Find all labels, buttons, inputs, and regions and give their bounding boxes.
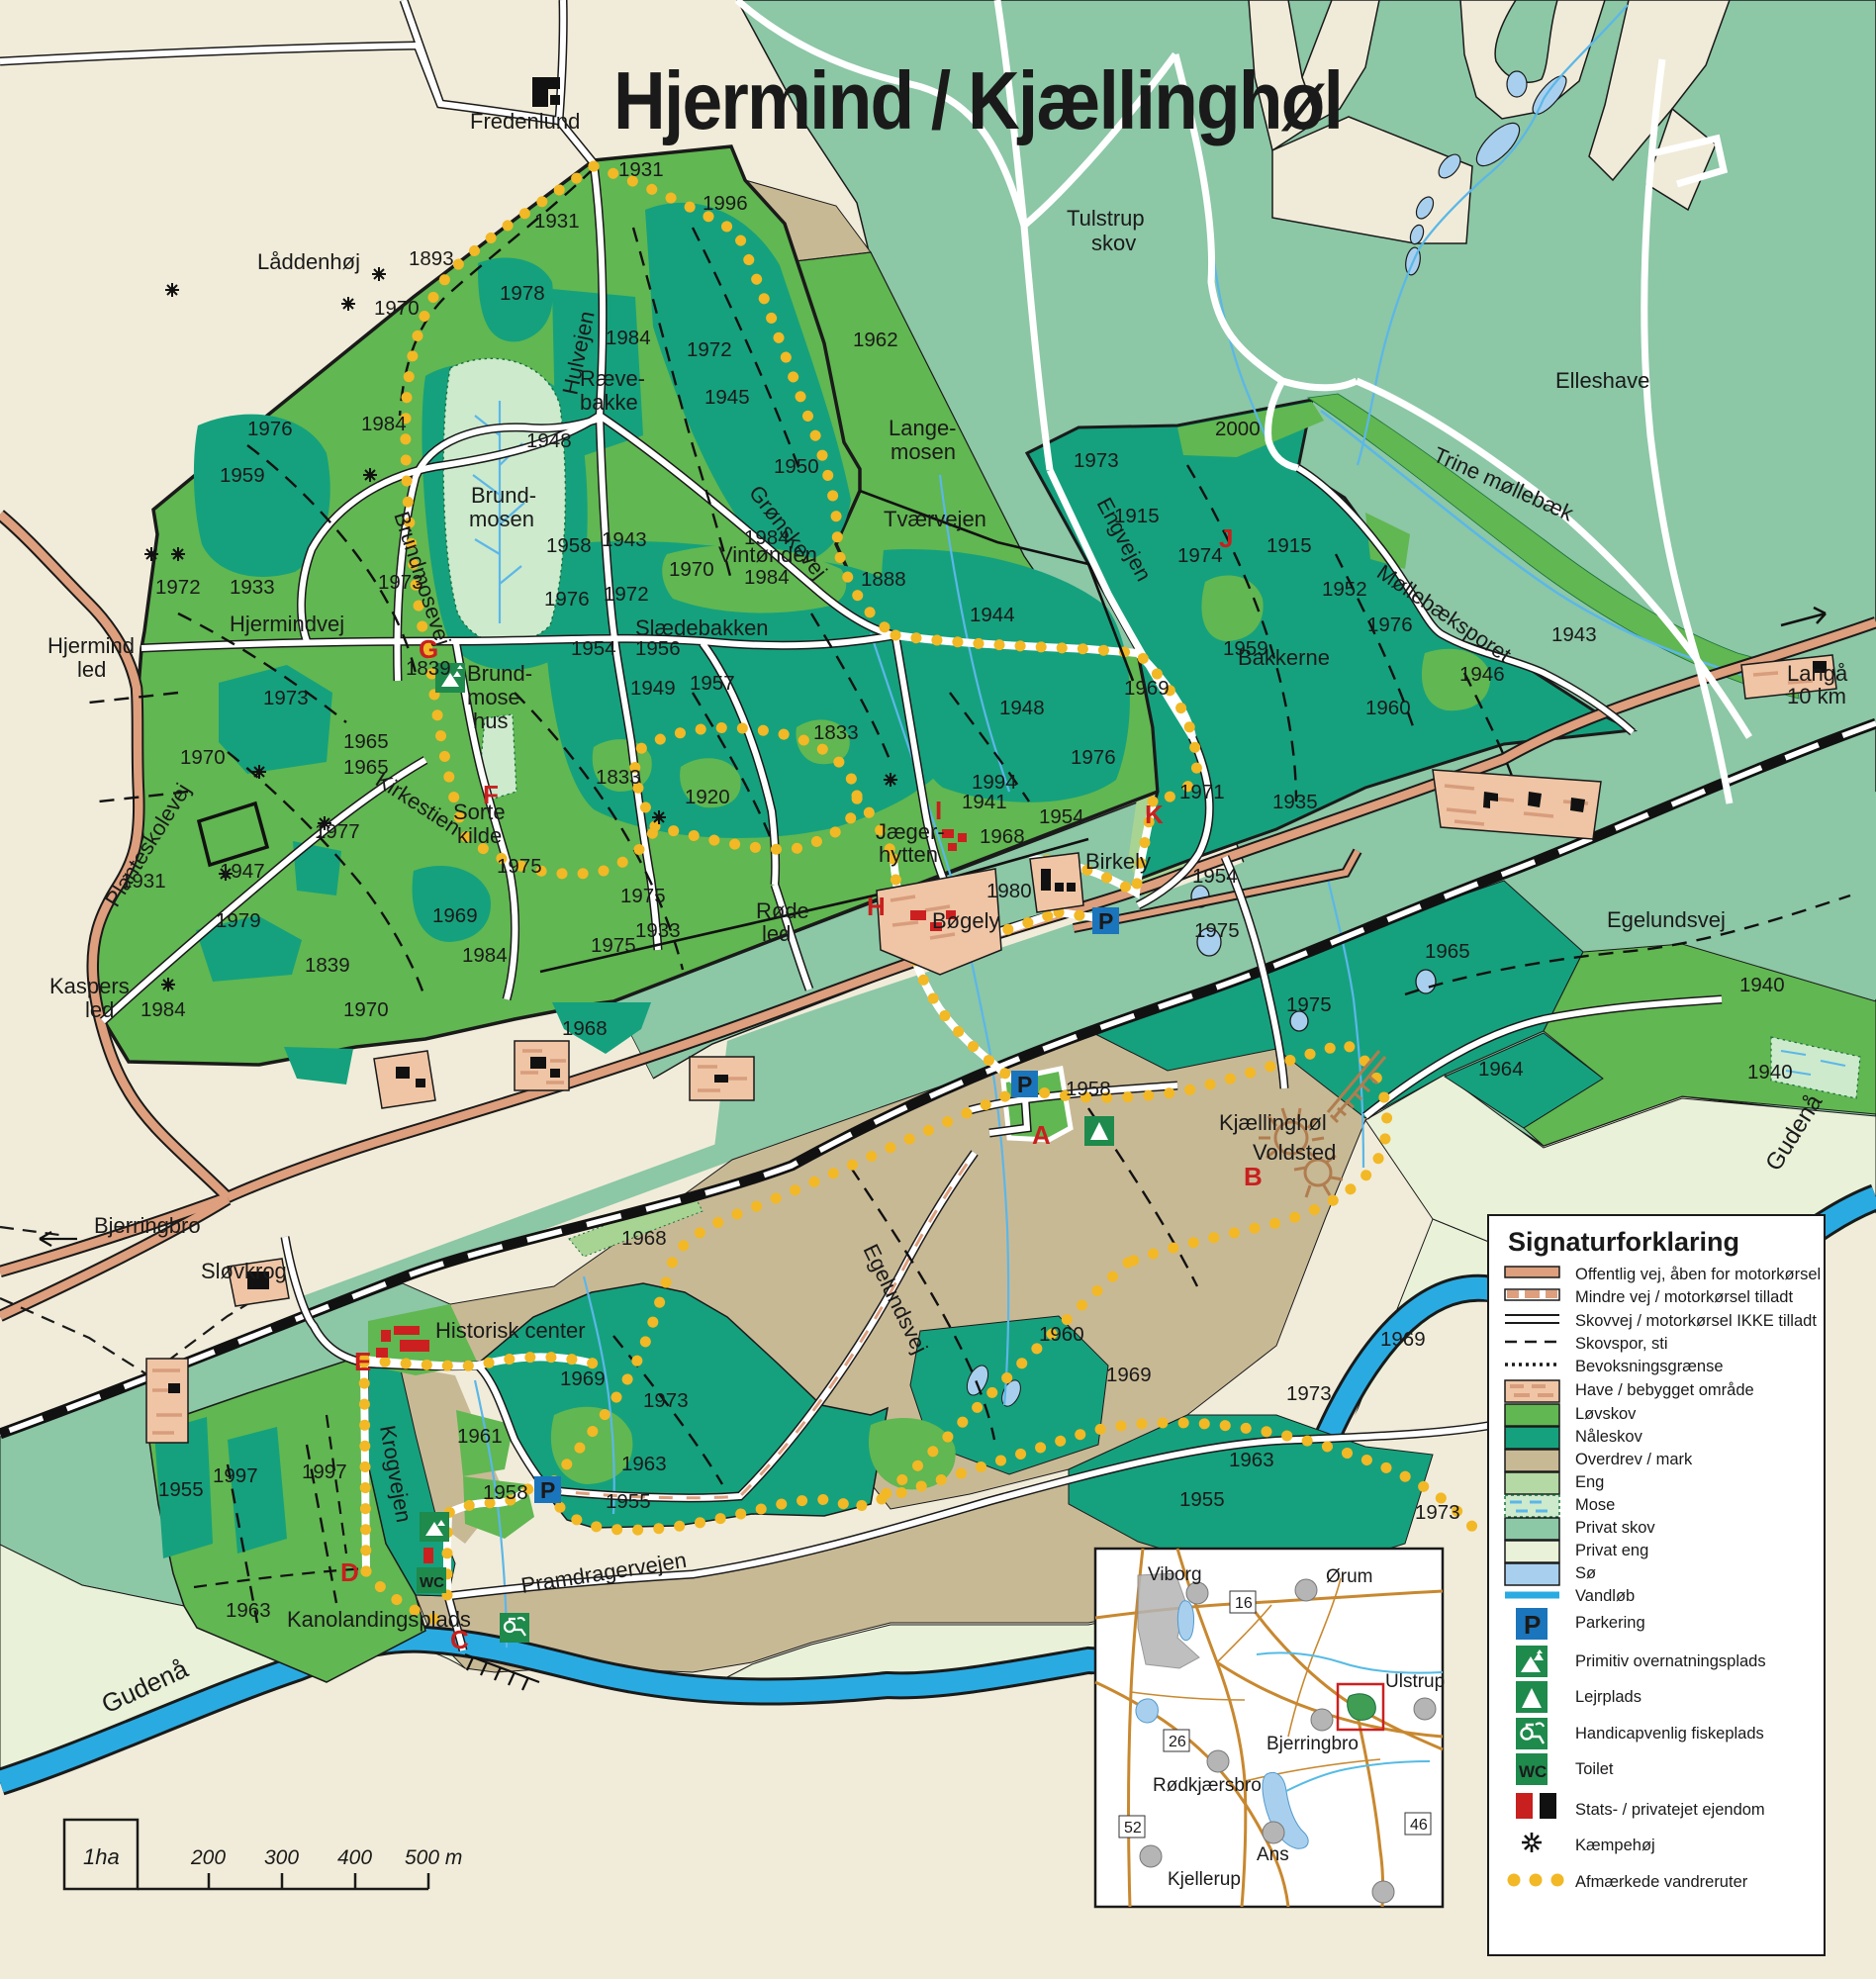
svg-text:Mose: Mose [1575,1496,1615,1514]
svg-text:1975: 1975 [1194,919,1240,942]
svg-text:Rødkjærsbro: Rødkjærsbro [1153,1775,1262,1796]
svg-text:1969: 1969 [432,904,478,927]
svg-text:B: B [1244,1162,1263,1191]
svg-text:1984: 1984 [606,327,651,349]
svg-text:1963: 1963 [1229,1449,1274,1471]
svg-text:Afmærkede vandreruter: Afmærkede vandreruter [1575,1873,1748,1891]
svg-text:Bjerringbro: Bjerringbro [1266,1734,1359,1754]
svg-text:1975: 1975 [591,934,636,957]
svg-text:1948: 1948 [526,429,572,452]
svg-text:1833: 1833 [813,721,859,744]
svg-text:Lejrplads: Lejrplads [1575,1688,1641,1706]
svg-text:Ørum: Ørum [1326,1566,1373,1587]
svg-text:1970: 1970 [669,558,714,581]
svg-text:1997: 1997 [213,1464,258,1487]
svg-text:1994: 1994 [972,771,1017,794]
svg-text:1935: 1935 [1272,791,1318,813]
svg-text:H: H [867,892,886,921]
svg-text:1920: 1920 [685,786,730,808]
svg-text:1969: 1969 [560,1367,606,1390]
svg-text:Offentlig vej, åben for motork: Offentlig vej, åben for motorkørsel [1575,1266,1821,1283]
svg-text:Voldsted: Voldsted [1253,1140,1336,1165]
svg-text:1931: 1931 [534,210,580,233]
svg-text:Brund-: Brund- [467,661,532,686]
svg-text:Skovvej / motorkørsel IKKE til: Skovvej / motorkørsel IKKE tilladt [1575,1312,1817,1330]
svg-text:Tulstrup: Tulstrup [1067,206,1145,231]
svg-text:1954: 1954 [571,637,616,660]
svg-text:Viborg: Viborg [1148,1564,1202,1585]
svg-text:Lange-: Lange- [889,416,957,440]
svg-text:1888: 1888 [861,568,906,591]
svg-text:Bevoksningsgrænse: Bevoksningsgrænse [1575,1358,1724,1375]
svg-text:1976: 1976 [1071,746,1116,769]
svg-text:Vandløb: Vandløb [1575,1587,1635,1605]
svg-text:1940: 1940 [1739,974,1785,996]
svg-text:Brund-: Brund- [471,483,536,508]
svg-text:46: 46 [1410,1817,1428,1834]
svg-text:led: led [85,997,114,1022]
svg-text:1931: 1931 [618,158,664,181]
svg-text:26: 26 [1169,1734,1186,1750]
svg-text:1978: 1978 [500,282,545,305]
svg-text:Elleshave: Elleshave [1555,368,1649,393]
svg-text:1973: 1973 [1074,449,1119,472]
svg-text:1833: 1833 [596,766,641,789]
svg-text:2000: 2000 [1215,418,1261,440]
svg-text:52: 52 [1124,1820,1142,1837]
svg-text:E: E [354,1347,371,1376]
svg-text:P: P [1017,1072,1032,1097]
svg-text:1954: 1954 [1039,805,1084,828]
svg-text:J: J [1219,523,1233,553]
svg-text:1957: 1957 [690,672,735,695]
svg-text:led: led [762,921,791,946]
svg-text:1946: 1946 [1459,663,1505,686]
svg-text:Birkely: Birkely [1085,849,1151,874]
svg-text:1972: 1972 [604,583,649,606]
svg-text:1973: 1973 [643,1389,689,1412]
svg-text:Signaturforklaring: Signaturforklaring [1508,1227,1739,1257]
svg-text:1975: 1975 [620,885,666,907]
svg-text:P: P [1098,908,1113,934]
svg-text:1975: 1975 [1286,993,1332,1016]
svg-text:1976: 1976 [1367,613,1413,636]
svg-text:Sløvkrog: Sløvkrog [201,1259,287,1283]
svg-text:1964: 1964 [1478,1058,1524,1081]
svg-text:kilde: kilde [457,823,502,848]
svg-text:Ræve-: Ræve- [580,366,645,391]
svg-text:1945: 1945 [704,386,750,409]
svg-text:1943: 1943 [1551,623,1597,646]
svg-text:Privat eng: Privat eng [1575,1542,1648,1559]
svg-text:Privat skov: Privat skov [1575,1519,1655,1537]
svg-text:1933: 1933 [635,919,681,942]
svg-text:1976: 1976 [247,418,293,440]
svg-text:Langå: Langå [1787,661,1848,686]
svg-text:Låddenhøj: Låddenhøj [257,249,360,274]
svg-text:Hjermind: Hjermind [47,633,135,658]
svg-text:1971: 1971 [1179,781,1225,803]
svg-text:led: led [77,657,106,682]
svg-text:1976: 1976 [544,588,590,611]
svg-text:1969: 1969 [1124,677,1170,700]
svg-text:Hjermind / Kjællinghøl: Hjermind / Kjællinghøl [613,54,1342,146]
svg-text:mosen: mosen [891,439,956,464]
svg-text:Historisk center: Historisk center [435,1318,586,1343]
svg-text:200: 200 [190,1846,226,1869]
svg-text:1968: 1968 [562,1017,608,1040]
svg-text:bakke: bakke [580,390,638,415]
svg-text:Overdrev / mark: Overdrev / mark [1575,1451,1693,1468]
svg-text:A: A [1032,1120,1051,1150]
svg-text:16: 16 [1235,1595,1253,1612]
svg-text:Fredenlund: Fredenlund [470,109,580,134]
svg-text:C: C [450,1625,469,1654]
svg-text:WC: WC [1519,1762,1547,1781]
svg-text:G: G [419,634,438,664]
svg-text:1970: 1970 [343,998,389,1021]
svg-text:1980: 1980 [986,880,1032,902]
svg-text:1962: 1962 [853,329,898,351]
svg-text:1979: 1979 [216,909,261,932]
svg-text:1941: 1941 [962,791,1007,813]
svg-text:WC: WC [420,1574,444,1591]
svg-text:1893: 1893 [409,247,454,270]
svg-text:Bjerringbro: Bjerringbro [94,1213,201,1238]
svg-text:mosen: mosen [469,507,534,531]
svg-text:Kaspers: Kaspers [49,974,130,998]
svg-text:1973: 1973 [1286,1382,1332,1405]
svg-text:1973: 1973 [263,687,309,709]
svg-text:1969: 1969 [1106,1364,1152,1386]
svg-text:300: 300 [264,1846,299,1869]
svg-text:1948: 1948 [999,697,1045,719]
svg-text:1943: 1943 [602,528,647,551]
svg-text:1958: 1958 [1066,1078,1111,1100]
svg-text:Stats- / privatejet ejendom: Stats- / privatejet ejendom [1575,1801,1765,1819]
svg-text:1940: 1940 [1747,1061,1793,1084]
svg-text:1984: 1984 [744,566,790,589]
svg-text:Vintønden: Vintønden [718,542,817,567]
svg-text:F: F [483,780,499,809]
svg-text:1968: 1968 [980,825,1025,848]
svg-text:1984: 1984 [141,998,186,1021]
svg-text:1996: 1996 [703,192,748,215]
svg-text:P: P [1524,1610,1541,1640]
svg-text:1970: 1970 [180,746,226,769]
svg-text:1947: 1947 [220,860,265,883]
svg-text:Primitiv overnatningsplads: Primitiv overnatningsplads [1575,1652,1766,1670]
svg-text:1968: 1968 [621,1227,667,1250]
svg-text:1965: 1965 [1425,940,1470,963]
svg-text:Ulstrup: Ulstrup [1385,1671,1445,1692]
svg-text:1956: 1956 [635,637,681,660]
svg-text:1972: 1972 [155,576,201,599]
svg-text:K: K [1145,800,1164,829]
svg-text:1950: 1950 [774,455,819,478]
svg-text:Kjællinghøl: Kjællinghøl [1219,1110,1327,1135]
svg-text:500 m: 500 m [405,1846,462,1869]
svg-text:D: D [340,1557,359,1587]
svg-text:Egelundsvej: Egelundsvej [1607,907,1726,932]
svg-text:1954: 1954 [1192,865,1238,888]
svg-text:Røde: Røde [756,898,809,923]
svg-text:Kanolandingsplads: Kanolandingsplads [287,1607,471,1632]
svg-text:1984: 1984 [361,413,407,435]
svg-text:1ha: 1ha [83,1844,120,1869]
svg-text:1960: 1960 [1039,1323,1084,1346]
svg-text:1959: 1959 [220,464,265,487]
svg-text:1975: 1975 [497,855,542,878]
svg-text:1963: 1963 [226,1599,271,1622]
svg-text:1970: 1970 [374,297,420,320]
svg-text:1963: 1963 [621,1453,667,1475]
svg-text:1969: 1969 [1380,1328,1426,1351]
svg-text:1839: 1839 [305,954,350,977]
svg-text:P: P [540,1477,555,1503]
svg-text:1974: 1974 [1177,544,1223,567]
svg-text:1944: 1944 [970,604,1015,626]
svg-text:skov: skov [1091,231,1136,255]
svg-text:Skovspor, sti: Skovspor, sti [1575,1335,1668,1353]
svg-text:Mindre vej / motorkørsel tilla: Mindre vej / motorkørsel tilladt [1575,1288,1793,1306]
svg-text:Toilet: Toilet [1575,1760,1614,1778]
svg-text:Hjermindvej: Hjermindvej [230,612,344,636]
svg-text:hus: hus [473,708,508,733]
svg-text:1984: 1984 [462,944,508,967]
svg-text:1977: 1977 [315,820,360,843]
svg-text:10 km: 10 km [1787,684,1846,708]
svg-text:Løvskov: Løvskov [1575,1405,1637,1423]
svg-text:mose: mose [467,685,520,709]
svg-text:1997: 1997 [302,1461,347,1483]
svg-text:Parkering: Parkering [1575,1614,1645,1632]
svg-text:1961: 1961 [457,1425,503,1448]
svg-text:1952: 1952 [1322,578,1367,601]
svg-text:1960: 1960 [1365,697,1411,719]
svg-text:Ans: Ans [1257,1844,1289,1865]
svg-text:1933: 1933 [230,576,275,599]
svg-text:400: 400 [337,1846,372,1869]
svg-text:Sø: Sø [1575,1564,1596,1582]
svg-text:Have / bebygget område: Have / bebygget område [1575,1381,1754,1399]
svg-text:1973: 1973 [1415,1501,1460,1524]
svg-text:Bakkerne: Bakkerne [1238,645,1330,670]
svg-text:1955: 1955 [606,1490,651,1513]
svg-text:Slædebakken: Slædebakken [635,615,769,640]
svg-text:Tværvejen: Tværvejen [884,507,986,531]
svg-text:1915: 1915 [1266,534,1312,557]
svg-text:1955: 1955 [158,1478,204,1501]
svg-text:Kjellerup: Kjellerup [1168,1869,1241,1890]
svg-text:1972: 1972 [687,338,732,361]
svg-text:1958: 1958 [546,534,592,557]
svg-text:Nåleskov: Nåleskov [1575,1428,1643,1446]
svg-text:I: I [935,796,942,825]
svg-text:1958: 1958 [483,1481,528,1504]
svg-text:1955: 1955 [1179,1488,1225,1511]
svg-text:1949: 1949 [630,677,676,700]
svg-text:1965: 1965 [343,730,389,753]
svg-text:Eng: Eng [1575,1473,1604,1491]
svg-text:Bøgely: Bøgely [932,908,999,933]
svg-text:Handicapvenlig fiskeplads: Handicapvenlig fiskeplads [1575,1725,1764,1743]
svg-text:Kæmpehøj: Kæmpehøj [1575,1837,1655,1854]
svg-text:hytten: hytten [879,842,938,867]
